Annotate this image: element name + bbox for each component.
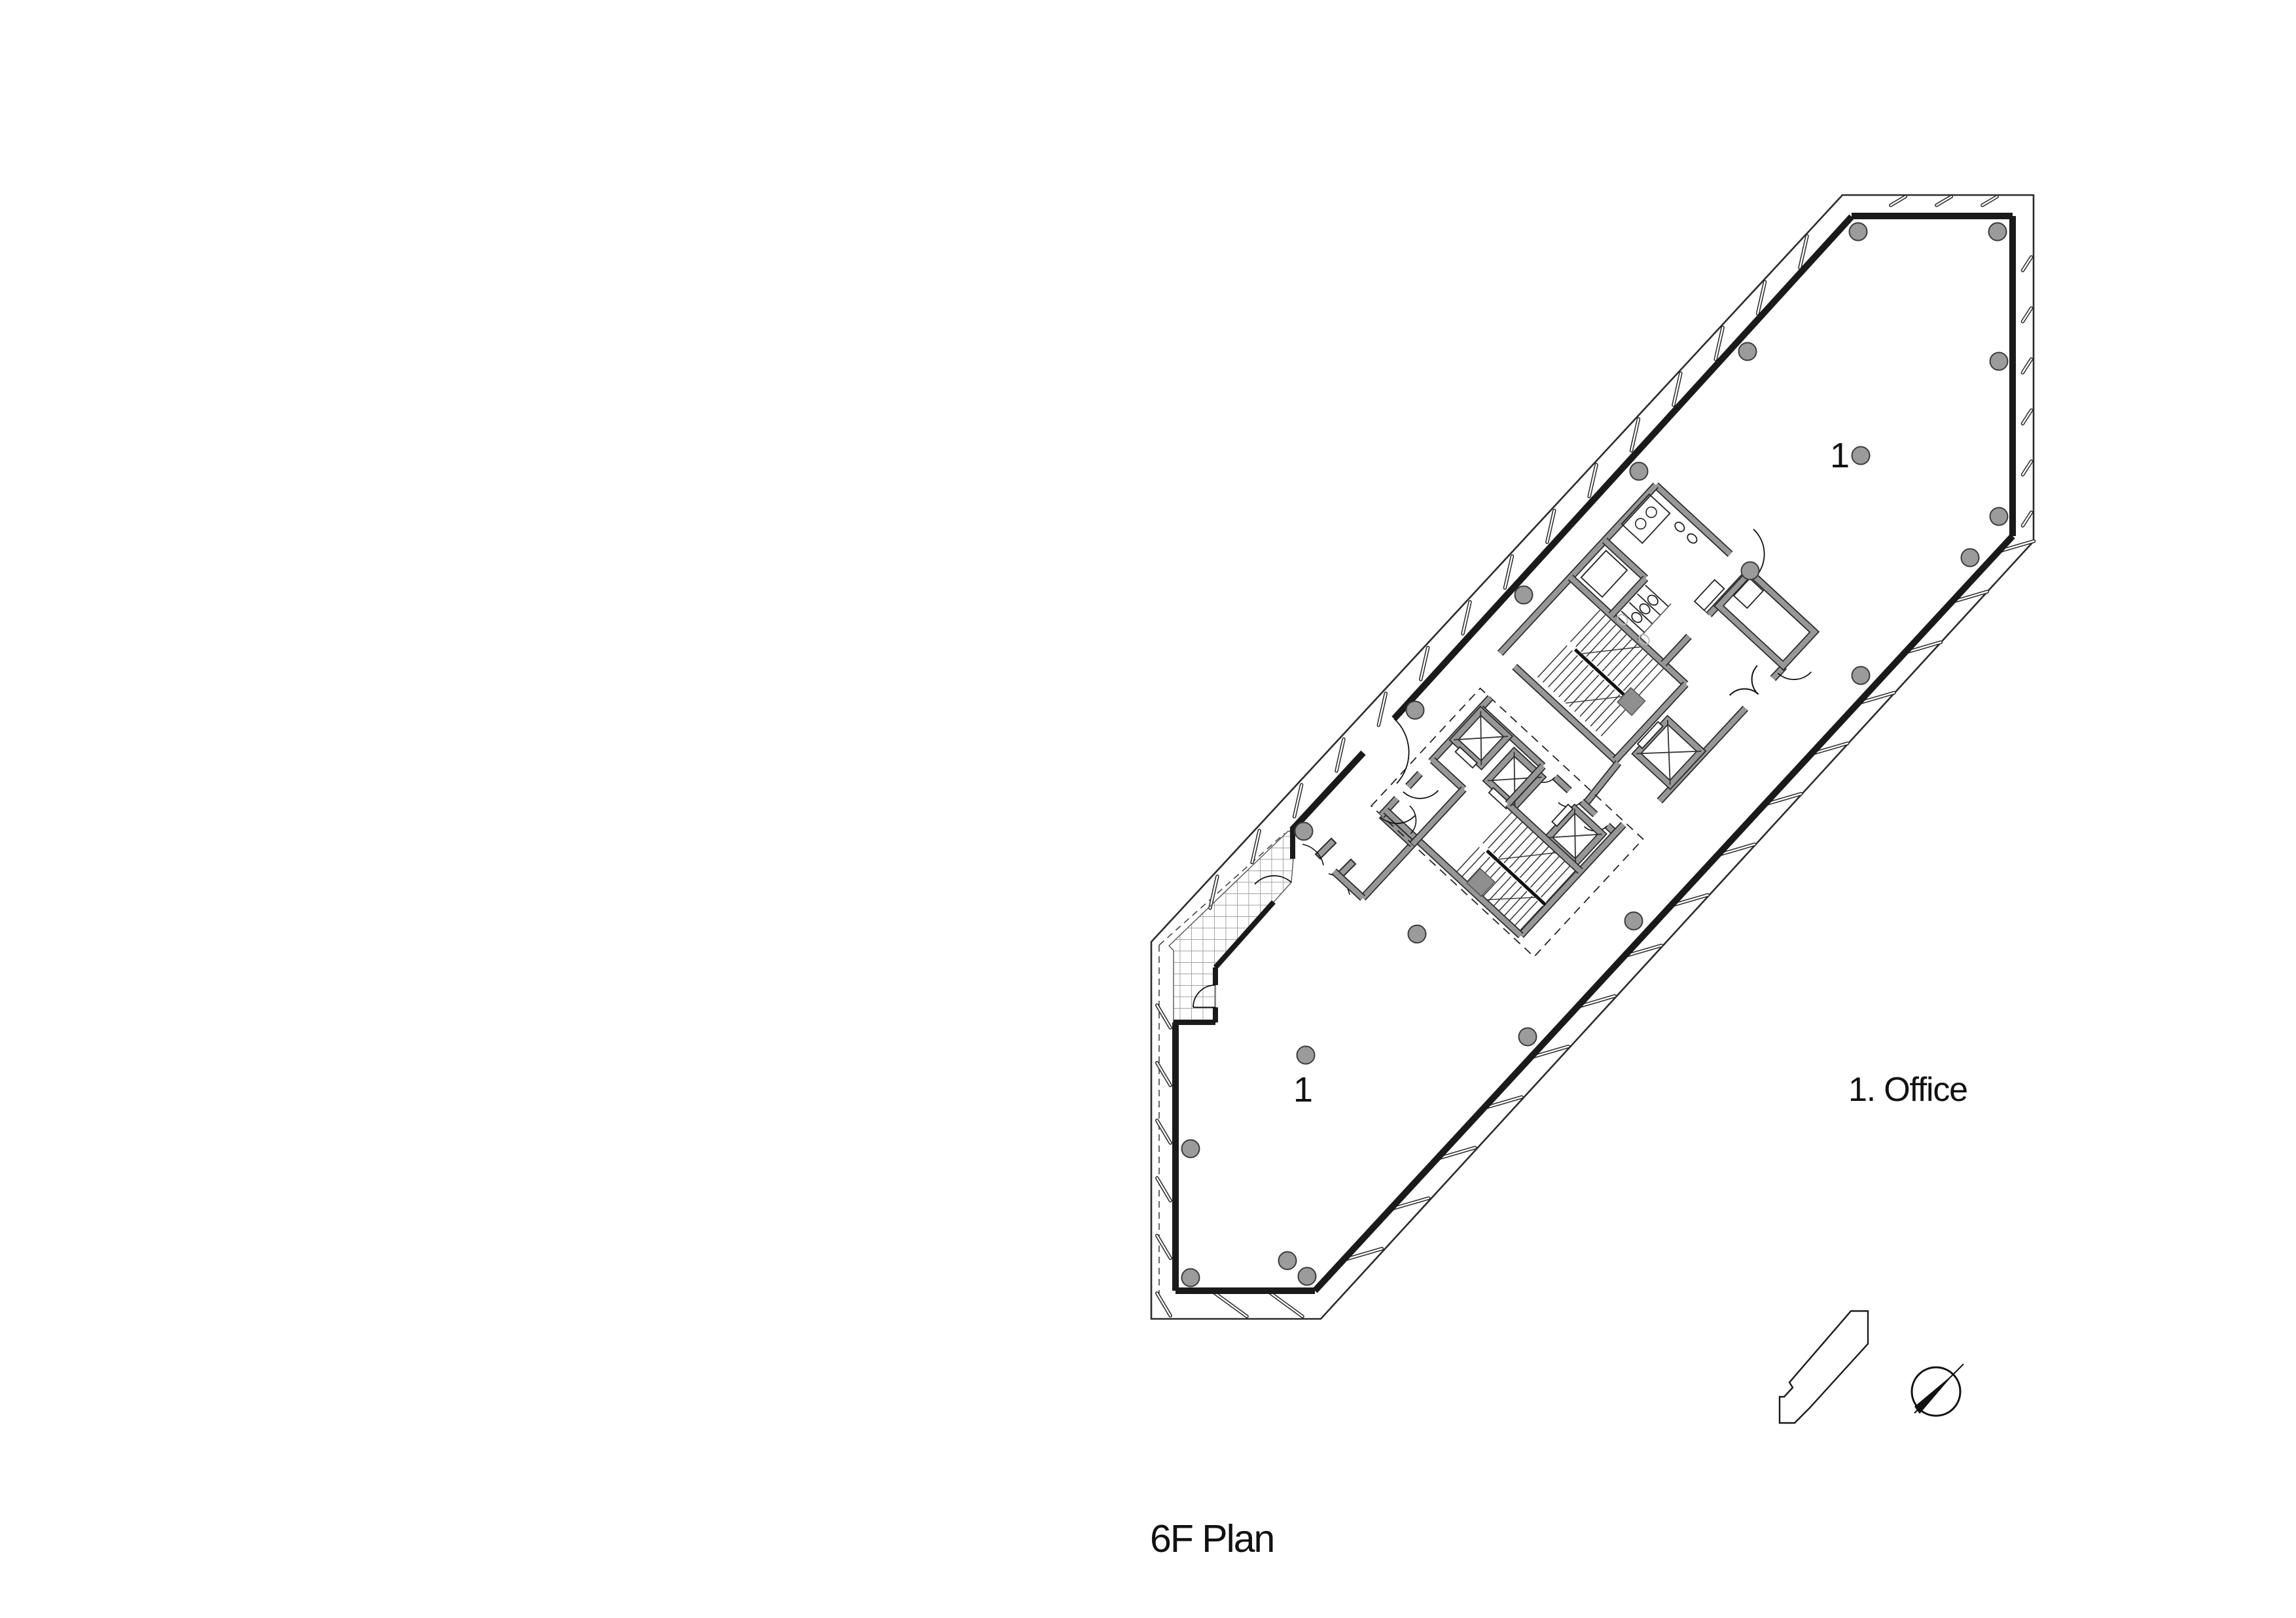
svg-text:1. Office: 1. Office xyxy=(1848,1071,1967,1109)
svg-text:1: 1 xyxy=(1293,1070,1313,1109)
svg-text:1: 1 xyxy=(1830,436,1850,475)
svg-text:6F Plan: 6F Plan xyxy=(1150,1517,1274,1560)
